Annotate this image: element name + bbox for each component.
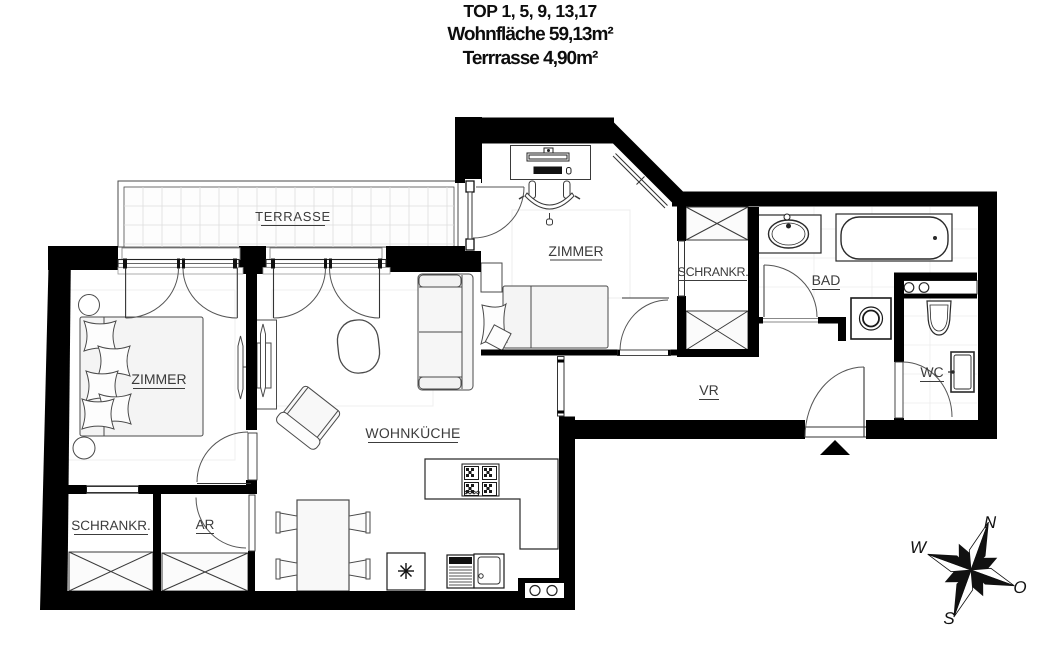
svg-text:ZIMMER: ZIMMER: [548, 243, 603, 259]
svg-text:Terrrasse 4,90m²: Terrrasse 4,90m²: [463, 48, 598, 69]
svg-text:TOP 1, 5, 9, 13,17: TOP 1, 5, 9, 13,17: [463, 1, 596, 21]
svg-text:WC: WC: [920, 364, 943, 380]
svg-text:VR: VR: [699, 382, 718, 398]
svg-text:N: N: [984, 513, 997, 532]
svg-text:AR: AR: [196, 517, 215, 532]
svg-text:WOHNKÜCHE: WOHNKÜCHE: [365, 425, 460, 441]
svg-text:S: S: [943, 609, 955, 628]
svg-text:ZIMMER: ZIMMER: [131, 371, 186, 387]
svg-text:TERRASSE: TERRASSE: [255, 209, 331, 224]
svg-text:BAD: BAD: [812, 272, 841, 288]
svg-text:Wohnfläche 59,13m²: Wohnfläche 59,13m²: [447, 24, 613, 45]
svg-text:SCHRANKR.: SCHRANKR.: [71, 518, 151, 533]
svg-text:W: W: [910, 538, 928, 557]
svg-text:O: O: [1013, 578, 1026, 597]
svg-text:SCHRANKR.: SCHRANKR.: [678, 265, 749, 279]
